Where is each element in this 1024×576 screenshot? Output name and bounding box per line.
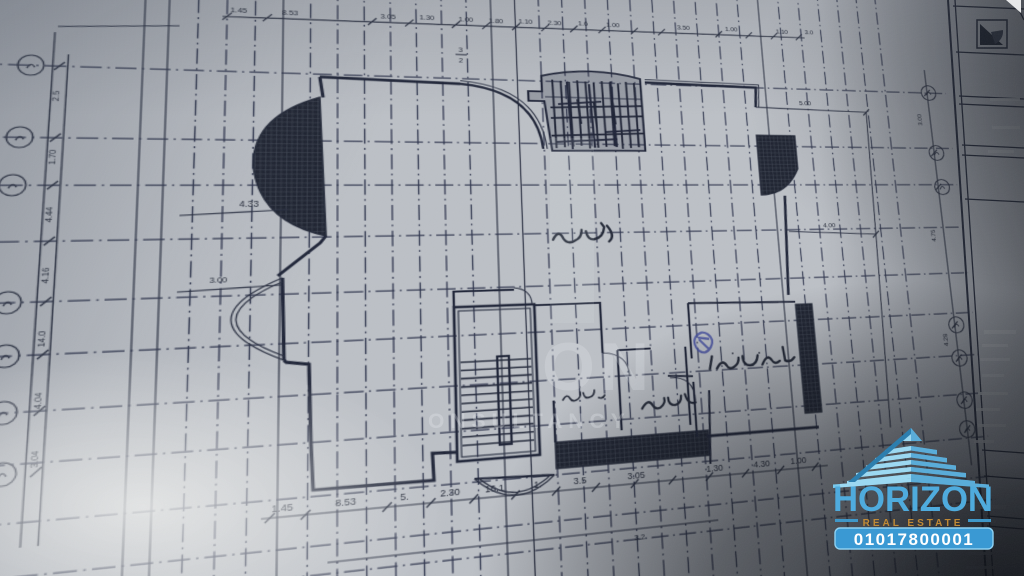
svg-text:HORIZON: HORIZON bbox=[833, 480, 993, 519]
svg-text:01017800001: 01017800001 bbox=[854, 530, 975, 549]
